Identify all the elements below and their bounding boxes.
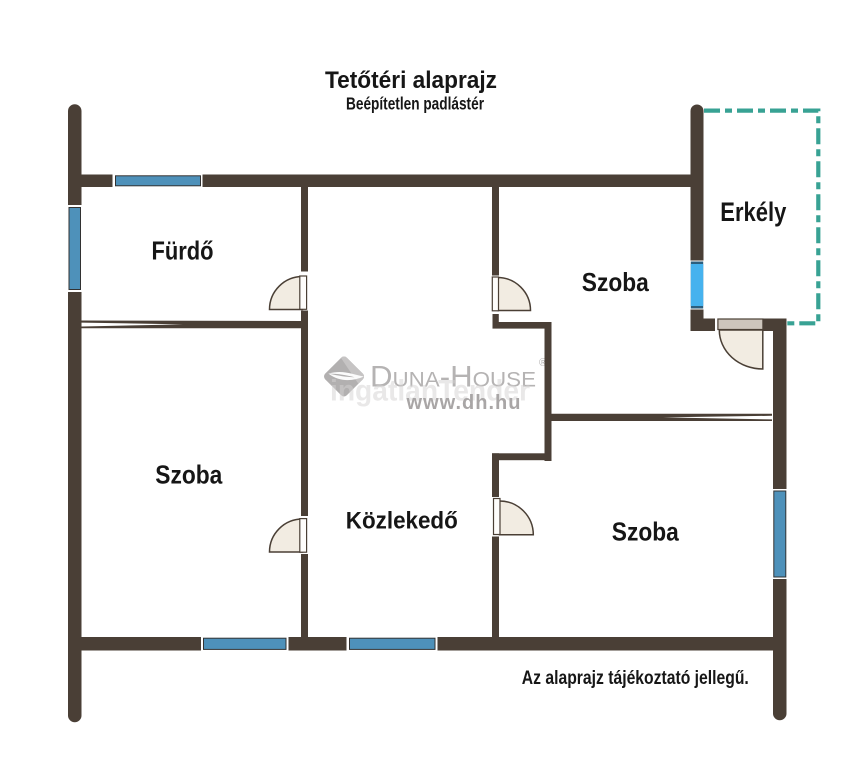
svg-text:Beépítetlen padlástér: Beépítetlen padlástér [346,94,484,114]
svg-text:Az alaprajz tájékoztató jelleg: Az alaprajz tájékoztató jellegű. [522,668,749,689]
svg-text:Szoba: Szoba [582,267,649,297]
svg-text:Szoba: Szoba [155,460,222,490]
svg-text:Szoba: Szoba [612,517,679,547]
svg-text:www.dh.hu: www.dh.hu [406,392,522,414]
svg-text:Közlekedő: Közlekedő [346,508,458,535]
svg-text:Fürdő: Fürdő [152,236,214,266]
svg-text:Tetőtéri alaprajz: Tetőtéri alaprajz [325,67,497,94]
svg-text:Erkély: Erkély [720,197,786,227]
